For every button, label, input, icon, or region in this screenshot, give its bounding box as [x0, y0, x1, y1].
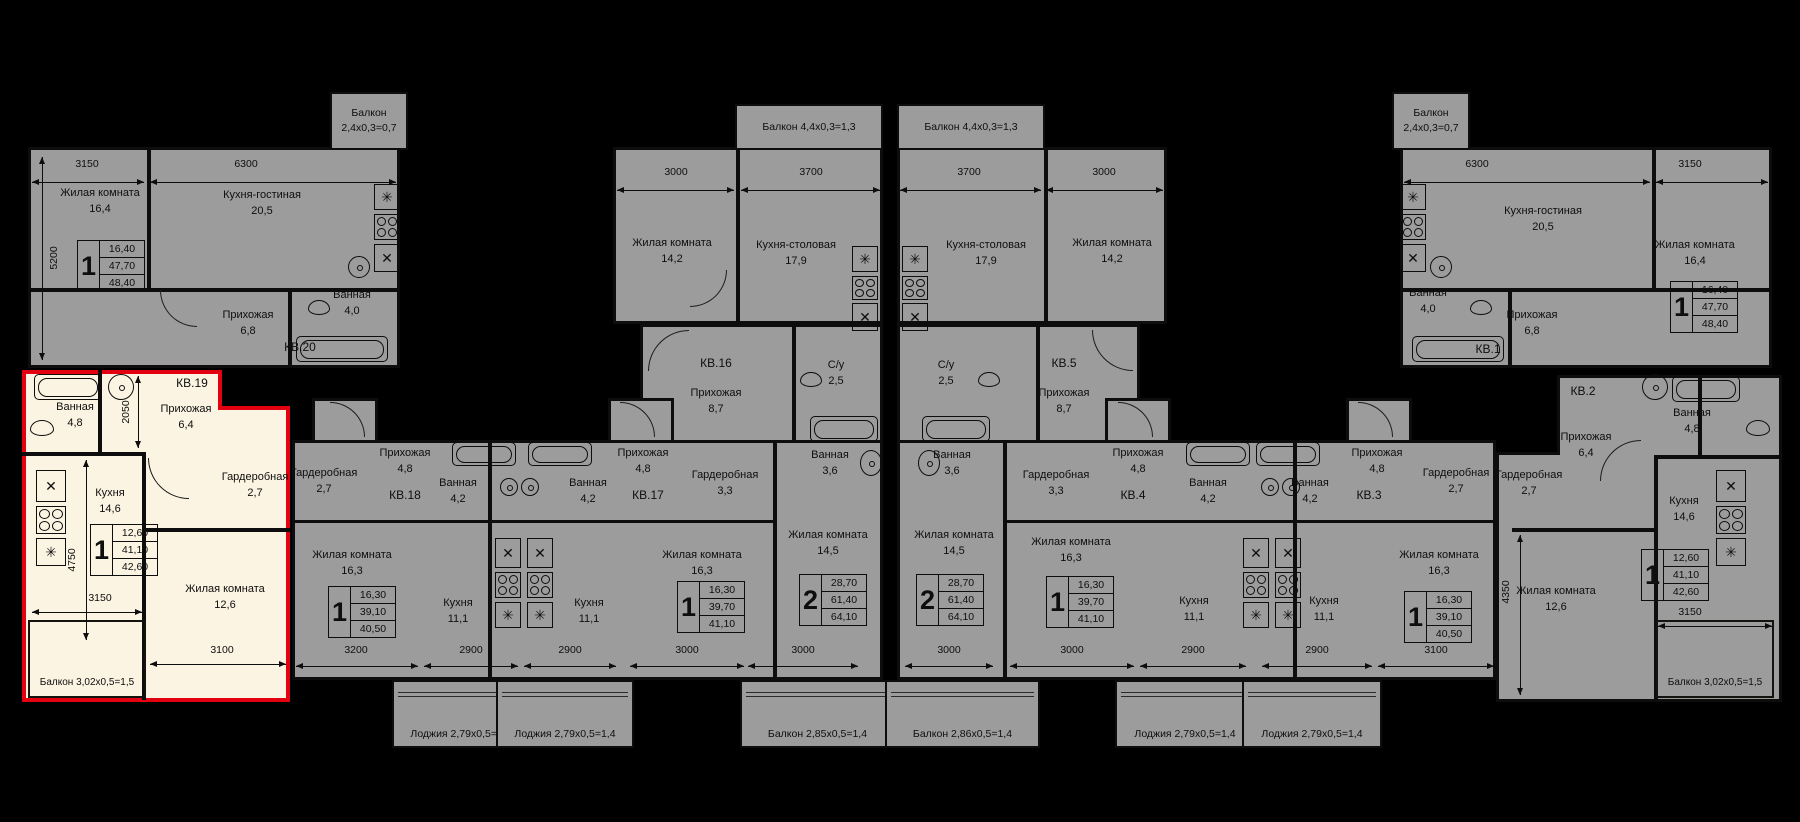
stove-burners-icon: [36, 506, 66, 534]
loggia-kv4-label: Лоджия 2,79х0,5=1,4: [1117, 728, 1253, 740]
kv17-bath-label: Ванная4,2: [569, 476, 607, 508]
kv4-living-label: Жилая комната16,3: [1031, 535, 1110, 567]
wall: [773, 440, 777, 680]
dim-kv20-w2: 6300: [234, 158, 257, 170]
stove-burners-icon: [527, 572, 553, 598]
dim-line: [630, 666, 744, 667]
fridge-asterisk-icon: ✳: [495, 602, 521, 628]
kv19-wardrobe-label: Гардеробная2,7: [222, 470, 289, 502]
kv3-hall-label: Прихожая4,8: [1352, 446, 1403, 478]
balcony-kv5-label: Балкон 4,4х0,3=1,3: [924, 120, 1017, 135]
balcony-bottom-kv16: Балкон 2,85х0,5=1,4: [740, 680, 895, 748]
dim-kv18-w1: 3200: [344, 644, 367, 656]
fridge-asterisk-icon: ✳: [852, 246, 878, 272]
balcony-kv20: Балкон 2,4х0,3=0,7: [330, 92, 408, 150]
balcony-kv20-size: 2,4х0,3=0,7: [341, 121, 396, 136]
stove-burners-icon: [852, 276, 878, 300]
sink-icon: [860, 450, 882, 476]
oven-icon: ✕: [1243, 538, 1269, 568]
dim-line: [748, 666, 858, 667]
fridge-asterisk-icon: ✳: [527, 602, 553, 628]
dim-line: [32, 182, 144, 183]
toilet-icon: [1746, 420, 1770, 436]
dim-kv4-w1: 3000: [1060, 644, 1083, 656]
kv1-living-label: Жилая комната16,4: [1655, 238, 1734, 270]
dim-line: [296, 666, 418, 667]
dim-kv17-w2: 3000: [675, 644, 698, 656]
oven-icon: ✕: [495, 538, 521, 568]
dim-kv18-w2: 2900: [459, 644, 482, 656]
oven-icon: ✕: [1275, 538, 1301, 568]
kv5-stat-box: 2 28,7061,4064,10: [916, 574, 984, 626]
loggia-kv17-label: Лоджия 2,79х0,5=1,4: [498, 728, 632, 740]
dim-kv20-w1: 3150: [75, 158, 98, 170]
wall: [292, 520, 488, 523]
kv20-living-label: Жилая комната16,4: [60, 186, 139, 218]
dim-kv20-h: 5200: [48, 246, 60, 269]
dim-line: [900, 190, 1041, 191]
balcony-kv20-label: Балкон: [351, 106, 386, 121]
dim-kv4-w2: 2900: [1181, 644, 1204, 656]
dim-line: [138, 376, 139, 448]
kv20-bath-label: Ванная4,0: [333, 288, 371, 320]
sink-icon: [500, 478, 518, 496]
kv1-kitchen-label: Кухня-гостиная20,5: [1504, 204, 1582, 236]
dim-kv16-w2: 3700: [799, 166, 822, 178]
railing: [1121, 692, 1249, 697]
kv19-notch: [218, 370, 290, 410]
dim-line: [42, 157, 43, 360]
kv16-hall-label: Прихожая8,7: [691, 386, 742, 418]
dim-kv5-w2: 3000: [1092, 166, 1115, 178]
dim-kv3-w2: 3100: [1424, 644, 1447, 656]
oven-icon: ✕: [1400, 244, 1426, 272]
dim-kv5-w1: 3700: [957, 166, 980, 178]
kv20-stat-box: 1 16,4047,7048,40: [77, 240, 145, 292]
kv18-wardrobe-label: Гардеробная2,7: [291, 466, 358, 498]
wall: [1036, 324, 1040, 442]
balcony-kv5: Балкон 4,4х0,3=1,3: [897, 104, 1045, 150]
kv2-wardrobe-label: Гардеробная2,7: [1496, 468, 1563, 500]
kv1-id: КВ.1: [1475, 342, 1500, 356]
dim-line: [150, 182, 396, 183]
dim-kv3-w1: 2900: [1305, 644, 1328, 656]
dim-kv5-b: 3000: [937, 644, 960, 656]
dim-kv16-b: 3000: [791, 644, 814, 656]
kv17-hall-label: Прихожая4,8: [618, 446, 669, 478]
wall: [1652, 147, 1656, 292]
kv4-kitchen-label: Кухня11,1: [1179, 594, 1208, 626]
kv19-id: КВ.19: [176, 376, 208, 390]
bathtub-icon: [922, 416, 990, 442]
oven-icon: ✕: [527, 538, 553, 568]
kv4-stat-box: 1 16,3039,7041,10: [1046, 576, 1114, 628]
dim-kv19-4750: 4750: [66, 548, 78, 571]
wall: [492, 520, 773, 523]
kv19-kitchen-label: Кухня14,6: [95, 486, 124, 518]
kv2-bath-label: Ванная4,8: [1673, 406, 1711, 438]
kv18-bath-label: Ванная4,2: [439, 476, 477, 508]
fridge-asterisk-icon: ✳: [1400, 184, 1426, 210]
sink-icon: [1430, 256, 1452, 278]
sink-icon: [108, 374, 134, 400]
kv16-wc-label: С/у2,5: [828, 358, 845, 390]
kv18-id: КВ.18: [389, 488, 421, 502]
wall: [142, 528, 290, 532]
kv2-notch: [1496, 375, 1560, 455]
wall: [1007, 520, 1293, 523]
kv2-kitchen-label: Кухня14,6: [1669, 494, 1698, 526]
fridge-asterisk-icon: ✳: [1275, 602, 1301, 628]
bathtub-icon: [34, 374, 102, 400]
dim-kv16-w1: 3000: [664, 166, 687, 178]
kv5-hall-label: Прихожая8,7: [1039, 386, 1090, 418]
toilet-icon: [800, 372, 822, 387]
dim-line: [150, 664, 286, 665]
sink-icon: [348, 256, 370, 278]
dim-kv2-4350: 4350: [1500, 580, 1512, 603]
sink-icon: [1261, 478, 1279, 496]
loggia-kv4: Лоджия 2,79х0,5=1,4: [1115, 680, 1255, 748]
fridge-asterisk-icon: ✳: [1243, 602, 1269, 628]
wall: [147, 147, 151, 292]
railing: [502, 692, 628, 697]
kv17-living-label: Жилая комната16,3: [662, 548, 741, 580]
kv20-id: КВ.20: [284, 340, 316, 354]
dim-line: [905, 666, 993, 667]
railing: [891, 692, 1034, 697]
dim-kv1-w1: 6300: [1465, 158, 1488, 170]
sink-icon: [1642, 374, 1668, 400]
kv19-balcony-box: Балкон 3,02х0,5=1,5: [28, 620, 146, 698]
loggia-kv3: Лоджия 2,79х0,5=1,4: [1242, 680, 1382, 748]
dim-kv1-w2: 3150: [1678, 158, 1701, 170]
dim-kv17-w1: 2900: [558, 644, 581, 656]
dim-line: [617, 190, 734, 191]
kv17-wardrobe-label: Гардеробная3,3: [692, 468, 759, 500]
dim-line: [1046, 190, 1163, 191]
floor-plan: Балкон 2,4х0,3=0,7 Балкон 4,4х0,3=1,3 Ба…: [0, 0, 1800, 822]
wall: [22, 452, 146, 456]
balcony-kv1-label: Балкон: [1413, 106, 1448, 121]
kv5-bath-label: Ванная3,6: [933, 448, 971, 480]
bathtub-icon: [1186, 442, 1250, 466]
kv19-balcony-label: Балкон 3,02х0,5=1,5: [30, 677, 144, 688]
kv16-living1-label: Жилая комната14,2: [632, 236, 711, 268]
stove-burners-icon: [1275, 572, 1301, 598]
kv1-bath-label: Ванная4,0: [1409, 286, 1447, 318]
oven-icon: ✕: [36, 470, 66, 502]
dim-line: [1404, 182, 1650, 183]
kv20-kitchen-label: Кухня-гостиная20,5: [223, 188, 301, 220]
kv2-balcony-box: Балкон 3,02х0,5=1,5: [1656, 620, 1774, 698]
dim-line: [1262, 666, 1372, 667]
kv19-living-label: Жилая комната12,6: [185, 582, 264, 614]
dim-line: [32, 612, 142, 613]
dim-line: [424, 666, 518, 667]
loggia-kv17: Лоджия 2,79х0,5=1,4: [496, 680, 634, 748]
bathtub-icon: [1672, 376, 1740, 402]
stove-burners-icon: [1716, 506, 1746, 534]
wall: [488, 440, 492, 680]
kv20-hall-label: Прихожая6,8: [223, 308, 274, 340]
kv2-hall-label: Прихожая6,4: [1561, 430, 1612, 462]
oven-icon: ✕: [902, 303, 928, 331]
bathtub-icon: [528, 442, 592, 466]
stove-burners-icon: [374, 214, 400, 240]
kv2-id: КВ.2: [1570, 384, 1595, 398]
sink-icon: [521, 478, 539, 496]
balcony-bottom-kv5: Балкон 2,86х0,5=1,4: [885, 680, 1040, 748]
dim-line: [1010, 666, 1134, 667]
kv3-kitchen-label: Кухня11,1: [1309, 594, 1338, 626]
wall: [1654, 455, 1782, 459]
dim-kv2-3150: 3150: [1678, 606, 1701, 618]
kv17-stat-box: 1 16,3039,7041,10: [677, 581, 745, 633]
balcony-kv16: Балкон 4,4х0,3=1,3: [735, 104, 883, 150]
dim-line: [86, 460, 87, 640]
dim-line: [524, 666, 616, 667]
dim-line: [741, 190, 880, 191]
kv16-stat-box: 2 28,7061,4064,10: [799, 574, 867, 626]
kv16-kitchen-label: Кухня-столовая17,9: [756, 238, 836, 270]
kv3-living-label: Жилая комната16,3: [1399, 548, 1478, 580]
kv4-bath-label: Ванная4,2: [1189, 476, 1227, 508]
toilet-icon: [30, 420, 54, 436]
toilet-icon: [978, 372, 1000, 387]
kv4-id: КВ.4: [1120, 488, 1145, 502]
stove-burners-icon: [1400, 214, 1426, 240]
kv3-bath-label: Ванная4,2: [1291, 476, 1329, 508]
loggia-kv3-label: Лоджия 2,79х0,5=1,4: [1244, 728, 1380, 740]
kv18-living-label: Жилая комната16,3: [312, 548, 391, 580]
fridge-asterisk-icon: ✳: [902, 246, 928, 272]
toilet-icon: [1470, 300, 1492, 315]
kv18-stat-box: 1 16,3039,1040,50: [328, 586, 396, 638]
kv2-living-label: Жилая комната12,6: [1516, 584, 1595, 616]
wall: [792, 324, 796, 442]
stove-burners-icon: [495, 572, 521, 598]
dim-line: [1656, 182, 1768, 183]
kv17-id: КВ.17: [632, 488, 664, 502]
wall: [288, 292, 292, 368]
bathtub-icon: [810, 416, 878, 442]
kv4-wardrobe-label: Гардеробная3,3: [1023, 468, 1090, 500]
wall: [1297, 520, 1496, 523]
fridge-asterisk-icon: ✳: [36, 538, 66, 566]
stove-burners-icon: [902, 276, 928, 300]
kv2-balcony-label: Балкон 3,02х0,5=1,5: [1658, 677, 1772, 688]
dim-kv19-3150: 3150: [88, 592, 111, 604]
kv5-id: КВ.5: [1051, 356, 1076, 370]
wall: [1044, 147, 1048, 324]
bathtub-icon: [452, 442, 516, 466]
dim-kv19-2050: 2050: [120, 400, 132, 423]
kv3-stat-box: 1 16,3039,1040,50: [1404, 591, 1472, 643]
kv16-id: КВ.16: [700, 356, 732, 370]
dim-line: [1378, 666, 1494, 667]
kv16-bath-label: Ванная3,6: [811, 448, 849, 480]
dim-kv19-3100: 3100: [210, 644, 233, 656]
kv5-living1-label: Жилая комната14,2: [1072, 236, 1151, 268]
railing: [1248, 692, 1376, 697]
fridge-asterisk-icon: ✳: [1716, 538, 1746, 566]
kv18-kitchen-label: Кухня11,1: [443, 596, 472, 628]
kv3-wardrobe-label: Гардеробная2,7: [1423, 466, 1490, 498]
kv1-hall-label: Прихожая6,8: [1507, 308, 1558, 340]
balcony-bottom-kv5-label: Балкон 2,86х0,5=1,4: [887, 728, 1038, 740]
kv5-wc-label: С/у2,5: [938, 358, 955, 390]
wall: [1512, 528, 1658, 532]
balcony-bottom-kv16-label: Балкон 2,85х0,5=1,4: [742, 728, 893, 740]
oven-icon: ✕: [374, 244, 400, 272]
stove-burners-icon: [1243, 572, 1269, 598]
wall: [1003, 440, 1007, 680]
balcony-kv1: Балкон 2,4х0,3=0,7: [1392, 92, 1470, 150]
toilet-icon: [308, 300, 330, 315]
railing: [746, 692, 889, 697]
kv5-kitchen-label: Кухня-столовая17,9: [946, 238, 1026, 270]
dim-line: [1140, 666, 1246, 667]
kv16-living2-label: Жилая комната14,5: [788, 528, 867, 560]
kv2-stat-box: 1 12,6041,1042,60: [1641, 549, 1709, 601]
fridge-asterisk-icon: ✳: [374, 184, 400, 210]
kv19-hall-label: Прихожая6,4: [161, 402, 212, 434]
kv19-bath-label: Ванная4,8: [56, 400, 94, 432]
balcony-kv16-label: Балкон 4,4х0,3=1,3: [762, 120, 855, 135]
balcony-kv1-size: 2,4х0,3=0,7: [1403, 121, 1458, 136]
dim-line: [1658, 626, 1772, 627]
kv17-kitchen-label: Кухня11,1: [574, 596, 603, 628]
kv4-hall-label: Прихожая4,8: [1113, 446, 1164, 478]
kv3-id: КВ.3: [1356, 488, 1381, 502]
kv19-stat-box: 1 12,6041,1042,60: [90, 524, 158, 576]
oven-icon: ✕: [1716, 470, 1746, 502]
oven-icon: ✕: [852, 303, 878, 331]
kv18-hall-label: Прихожая4,8: [380, 446, 431, 478]
kv5-living2-label: Жилая комната14,5: [914, 528, 993, 560]
kv1-stat-box: 1 16,4047,7048,40: [1670, 281, 1738, 333]
bathtub-icon: [1256, 442, 1320, 466]
wall: [736, 147, 740, 324]
